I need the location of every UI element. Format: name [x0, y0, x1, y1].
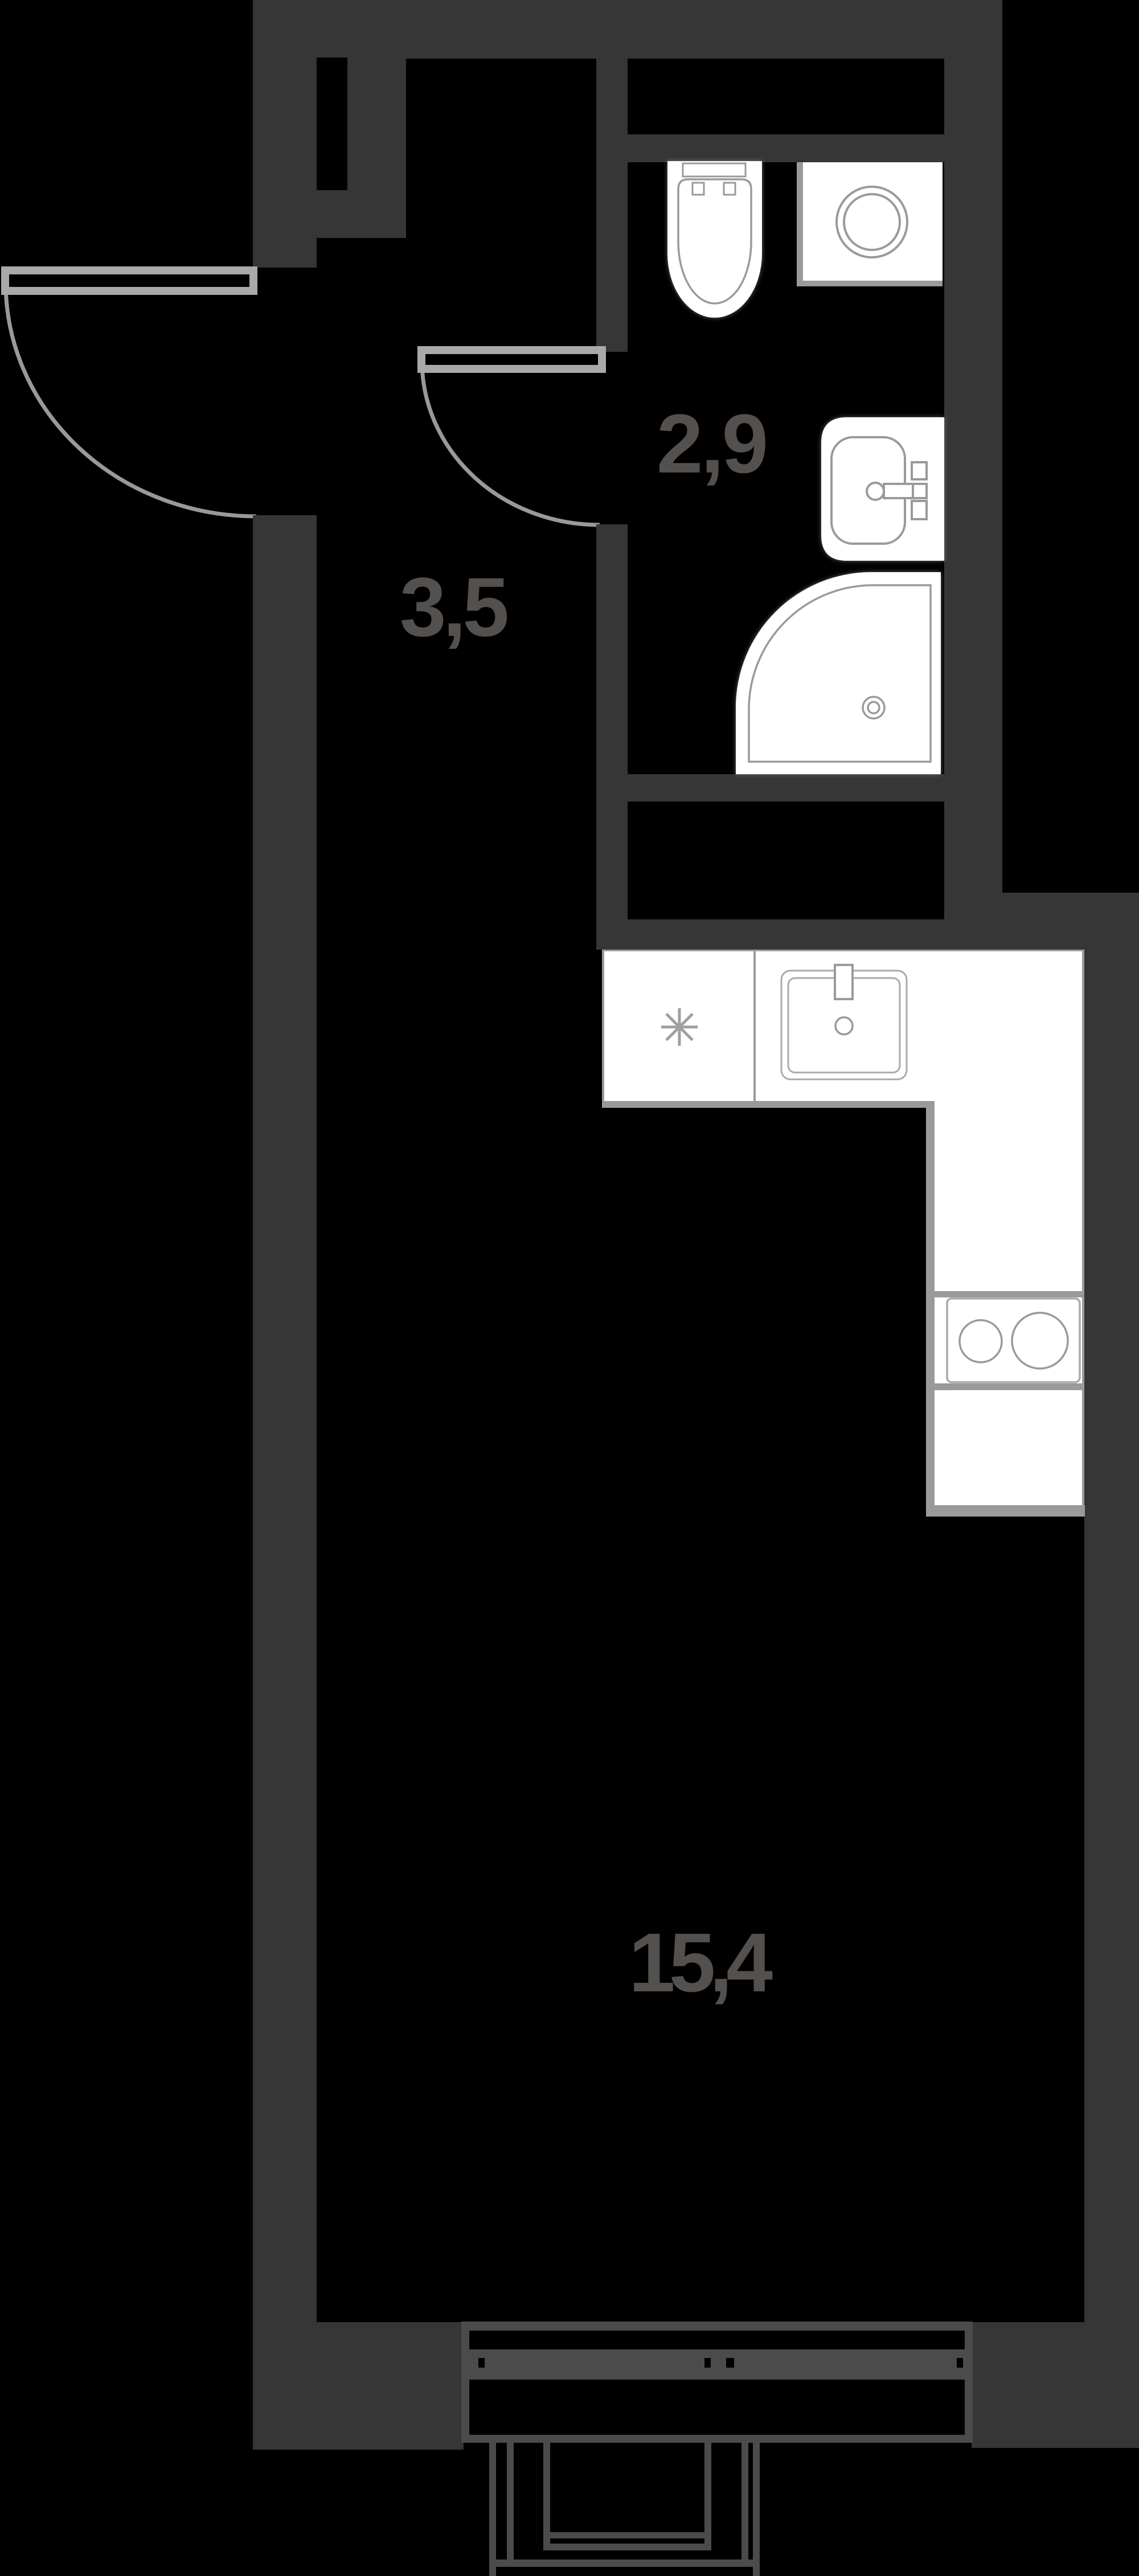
svg-text:3,5: 3,5: [400, 561, 507, 654]
svg-text:2,9: 2,9: [657, 397, 766, 491]
svg-text:15,4: 15,4: [629, 1916, 772, 2010]
